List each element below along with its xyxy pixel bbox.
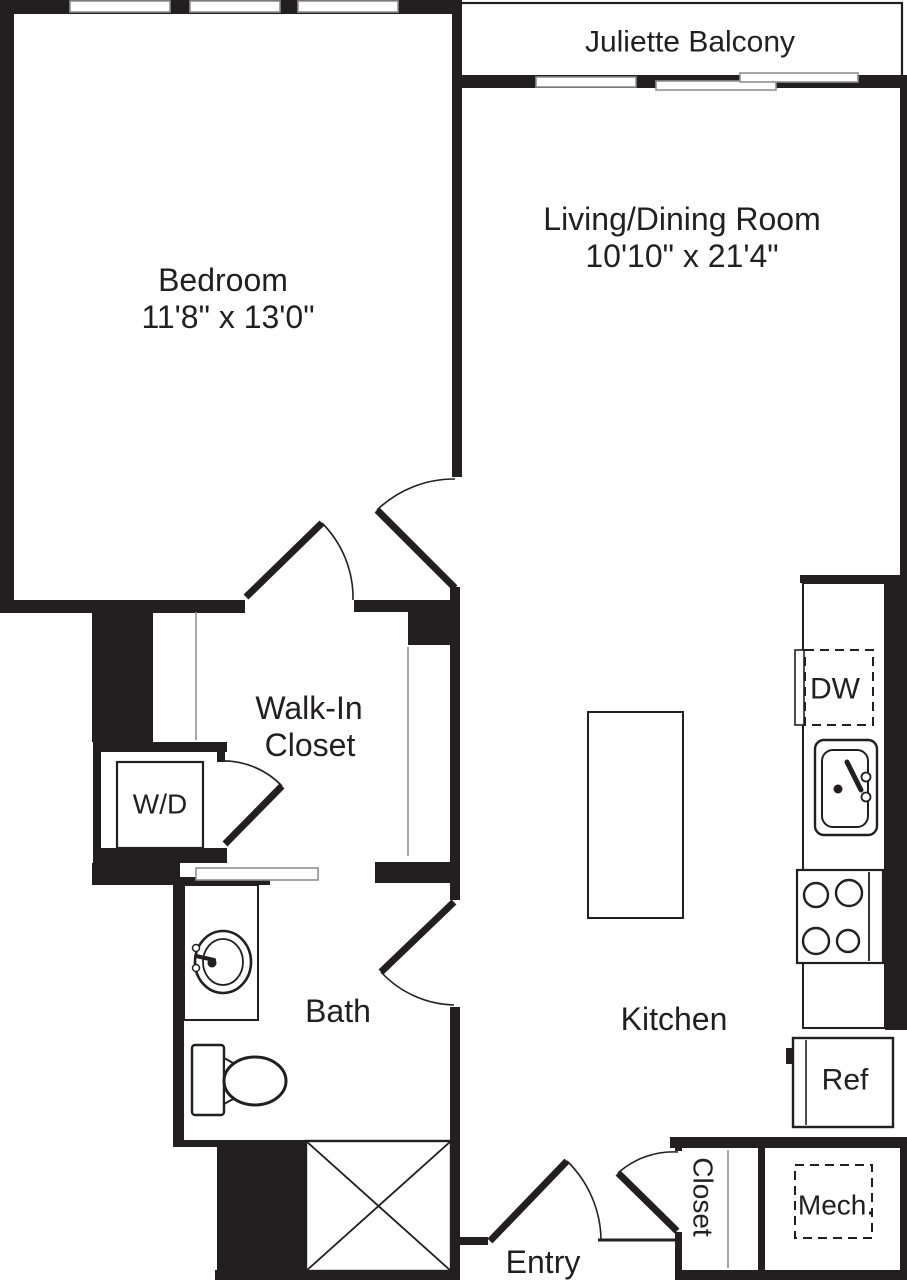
- floorplan-canvas: Juliette Balcony Living/Dining Room 10'1…: [0, 0, 907, 1280]
- bedroom-dims: 11'8" x 13'0": [141, 301, 314, 335]
- floorplan-drawing: [0, 0, 907, 1280]
- bedroom-window-1: [70, 1, 170, 12]
- walkin-closet-label-line2: Closet: [265, 729, 356, 763]
- fridge-handle-icon: [786, 1048, 793, 1064]
- kitchen-island: [588, 712, 683, 918]
- entry-label: Entry: [506, 1246, 581, 1280]
- living-window: [536, 77, 636, 87]
- wd-closet-door: [221, 761, 282, 844]
- burner-icon: [837, 930, 859, 952]
- entry-door: [490, 1161, 601, 1241]
- living-room-dims: 10'10" x 21'4": [585, 240, 778, 274]
- bedroom-window-3: [298, 1, 398, 12]
- walls: [0, 0, 907, 1280]
- balcony-slider-outer: [740, 73, 858, 82]
- balcony-label: Juliette Balcony: [585, 26, 795, 58]
- shower: [306, 1141, 451, 1271]
- burner-icon: [836, 880, 862, 906]
- kitchen-label: Kitchen: [621, 1003, 728, 1037]
- entry-closet-label: Closet: [688, 1157, 717, 1236]
- bath-pocket-door: [196, 868, 318, 880]
- burner-icon: [804, 883, 828, 907]
- dw-label: DW: [810, 673, 860, 705]
- bath-vanity: [184, 885, 258, 1020]
- stove: [797, 870, 883, 963]
- burner-icon: [803, 928, 829, 954]
- bath-door: [381, 902, 454, 1005]
- wd-label: W/D: [133, 789, 187, 818]
- entry-closet-door: [618, 1152, 678, 1231]
- toilet: [192, 1045, 286, 1115]
- bedroom-window-2: [190, 1, 280, 12]
- ref-label: Ref: [822, 1064, 869, 1096]
- bedroom-door: [377, 479, 455, 588]
- walkin-closet-label-line1: Walk-In: [255, 692, 362, 726]
- living-room-label: Living/Dining Room: [543, 203, 820, 237]
- walkin-closet-door: [246, 523, 353, 600]
- bedroom-label: Bedroom: [158, 264, 288, 298]
- mech-label: Mech.: [798, 1190, 874, 1219]
- kitchen-sink: [815, 740, 877, 835]
- bath-label: Bath: [305, 995, 371, 1029]
